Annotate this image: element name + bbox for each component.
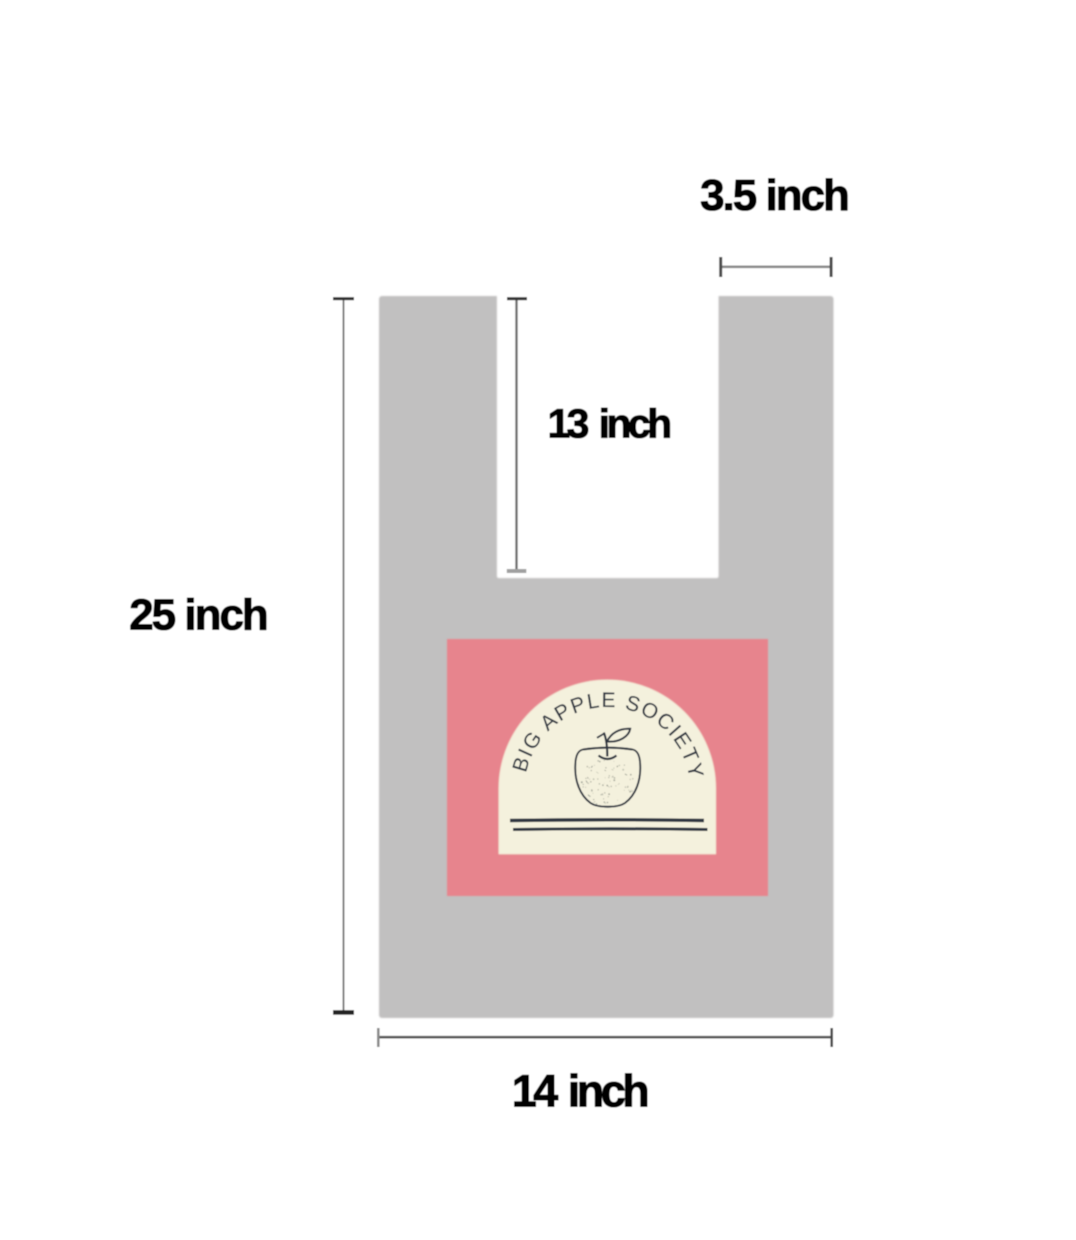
- svg-text:3.5 inch: 3.5 inch: [700, 171, 848, 220]
- svg-text:25 inch: 25 inch: [129, 591, 267, 640]
- svg-text:13 inch: 13 inch: [547, 401, 670, 447]
- svg-text:14 inch: 14 inch: [512, 1066, 648, 1117]
